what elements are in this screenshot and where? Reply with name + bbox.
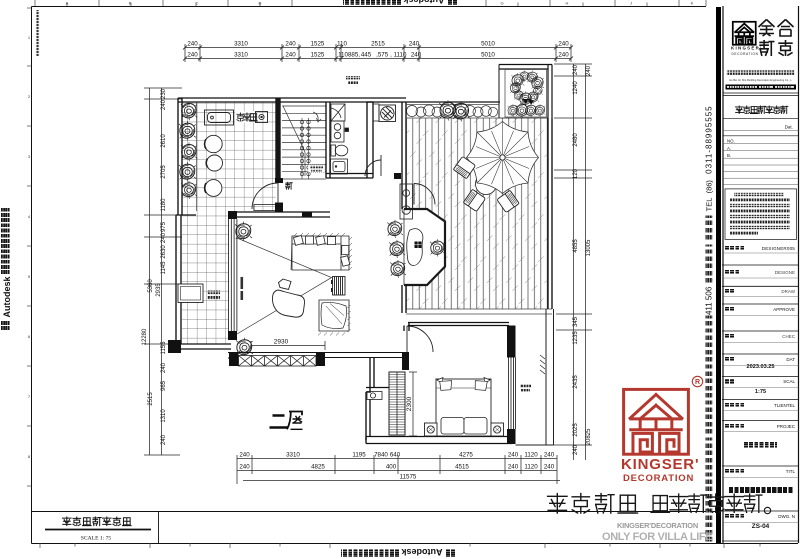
svg-text:20825: 20825 xyxy=(586,428,592,445)
svg-text:13005: 13005 xyxy=(586,239,592,256)
svg-text:240: 240 xyxy=(161,99,167,110)
svg-text:240: 240 xyxy=(573,444,579,455)
svg-text:230: 230 xyxy=(161,88,167,99)
svg-text:,: , xyxy=(390,52,392,59)
svg-text:KINGSER': KINGSER' xyxy=(621,456,699,473)
svg-text:640: 640 xyxy=(390,452,401,459)
svg-text:1310: 1310 xyxy=(161,409,167,423)
svg-text:1180: 1180 xyxy=(161,198,167,212)
svg-text:240: 240 xyxy=(285,41,296,48)
svg-text:2435: 2435 xyxy=(573,375,579,389)
svg-text:345: 345 xyxy=(573,316,579,327)
svg-text:240: 240 xyxy=(558,41,569,48)
svg-text:1120: 1120 xyxy=(524,452,538,459)
svg-text:2515: 2515 xyxy=(371,41,385,48)
svg-text:5010: 5010 xyxy=(481,52,495,59)
svg-text:120: 120 xyxy=(573,168,579,179)
svg-text:240: 240 xyxy=(239,452,250,459)
svg-text:240: 240 xyxy=(187,41,198,48)
svg-text:2705: 2705 xyxy=(161,165,167,179)
svg-text:A: A xyxy=(66,1,69,6)
svg-text:1155: 1155 xyxy=(161,341,167,355)
svg-text:SCALE 1: 75: SCALE 1: 75 xyxy=(81,536,112,542)
svg-text:4855: 4855 xyxy=(573,239,579,253)
svg-text:2630: 2630 xyxy=(161,245,167,259)
svg-text:110: 110 xyxy=(337,41,347,48)
svg-text:240: 240 xyxy=(161,434,167,445)
svg-text:240: 240 xyxy=(187,52,198,59)
svg-text:240: 240 xyxy=(573,64,579,75)
svg-text:445: 445 xyxy=(361,52,372,59)
svg-text:4515: 4515 xyxy=(455,464,469,471)
svg-text:D: D xyxy=(259,1,262,6)
svg-text:1240: 1240 xyxy=(573,81,579,95)
svg-text:K: K xyxy=(691,1,694,6)
svg-text:DECORATION: DECORATION xyxy=(623,473,694,484)
svg-text:965: 965 xyxy=(161,380,167,391)
svg-text:240: 240 xyxy=(409,41,420,48)
svg-text:240: 240 xyxy=(411,52,422,59)
svg-text:1525: 1525 xyxy=(311,41,325,48)
svg-text:1235: 1235 xyxy=(573,331,579,345)
svg-text:7840: 7840 xyxy=(374,452,388,459)
svg-text:975: 975 xyxy=(161,221,167,232)
svg-text:G: G xyxy=(500,1,503,6)
svg-text:1525: 1525 xyxy=(311,52,325,59)
svg-text:240: 240 xyxy=(586,65,592,76)
svg-text:2610: 2610 xyxy=(161,134,167,148)
svg-text:5360: 5360 xyxy=(148,279,154,293)
svg-text:KINGSER': KINGSER' xyxy=(731,46,762,51)
svg-text:12280: 12280 xyxy=(142,328,148,345)
svg-text:240: 240 xyxy=(161,232,167,243)
svg-text:400: 400 xyxy=(386,464,397,471)
svg-text:3310: 3310 xyxy=(286,452,300,459)
svg-text:5010: 5010 xyxy=(481,41,495,48)
svg-text:2930: 2930 xyxy=(274,339,289,346)
svg-text:DECORATION: DECORATION xyxy=(732,52,759,56)
svg-text:240: 240 xyxy=(239,464,250,471)
svg-text:R: R xyxy=(695,379,700,386)
svg-text:240: 240 xyxy=(508,464,519,471)
svg-text:240: 240 xyxy=(544,464,555,471)
svg-text:2025: 2025 xyxy=(573,423,579,437)
svg-text:110: 110 xyxy=(338,52,348,59)
svg-text:240: 240 xyxy=(508,452,519,459)
svg-text:4825: 4825 xyxy=(311,464,325,471)
svg-text:2515: 2515 xyxy=(148,392,154,406)
svg-text:B: B xyxy=(129,1,132,6)
svg-text:1195: 1195 xyxy=(352,452,366,459)
svg-text:1120: 1120 xyxy=(524,464,538,471)
svg-text:11575: 11575 xyxy=(400,474,417,481)
svg-text:C: C xyxy=(196,1,199,6)
svg-text:240: 240 xyxy=(285,52,296,59)
svg-text:1110: 1110 xyxy=(394,52,407,59)
svg-text:885,: 885, xyxy=(348,52,360,59)
svg-text:2480: 2480 xyxy=(573,133,579,147)
svg-text:3310: 3310 xyxy=(234,52,248,59)
svg-text:H: H xyxy=(566,1,569,6)
svg-text:1145: 1145 xyxy=(161,261,167,275)
svg-text:2935: 2935 xyxy=(156,283,162,297)
svg-text:A.: A. xyxy=(727,146,731,151)
svg-text:2300: 2300 xyxy=(406,396,413,411)
svg-text:B.: B. xyxy=(727,153,731,158)
svg-text:Dat.: Dat. xyxy=(785,125,793,130)
svg-text:240: 240 xyxy=(161,362,167,373)
svg-text:3310: 3310 xyxy=(234,41,248,48)
svg-text:240: 240 xyxy=(544,452,555,459)
svg-text:240: 240 xyxy=(558,52,569,59)
svg-text:575: 575 xyxy=(378,52,389,59)
svg-text:4275: 4275 xyxy=(459,452,473,459)
svg-text:He Bei Jin She Building Decora: He Bei Jin She Building Decoration Engin… xyxy=(729,78,792,82)
svg-text:NO.: NO. xyxy=(727,139,735,144)
svg-text:J: J xyxy=(630,1,632,6)
